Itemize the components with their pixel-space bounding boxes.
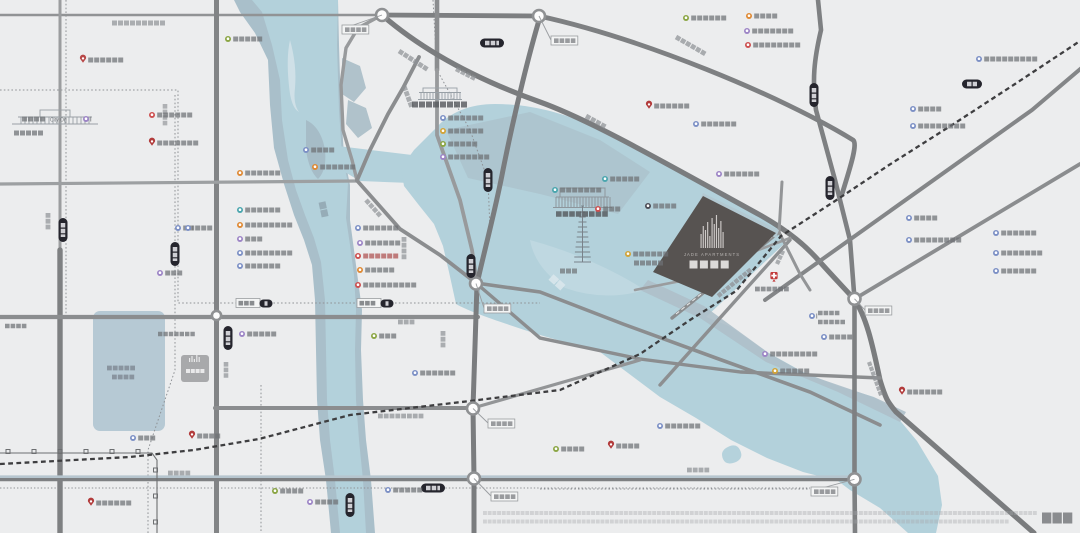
svg-text:JADE APARTMENTS: JADE APARTMENTS: [684, 252, 740, 257]
svg-text:City On: City On: [50, 118, 67, 124]
